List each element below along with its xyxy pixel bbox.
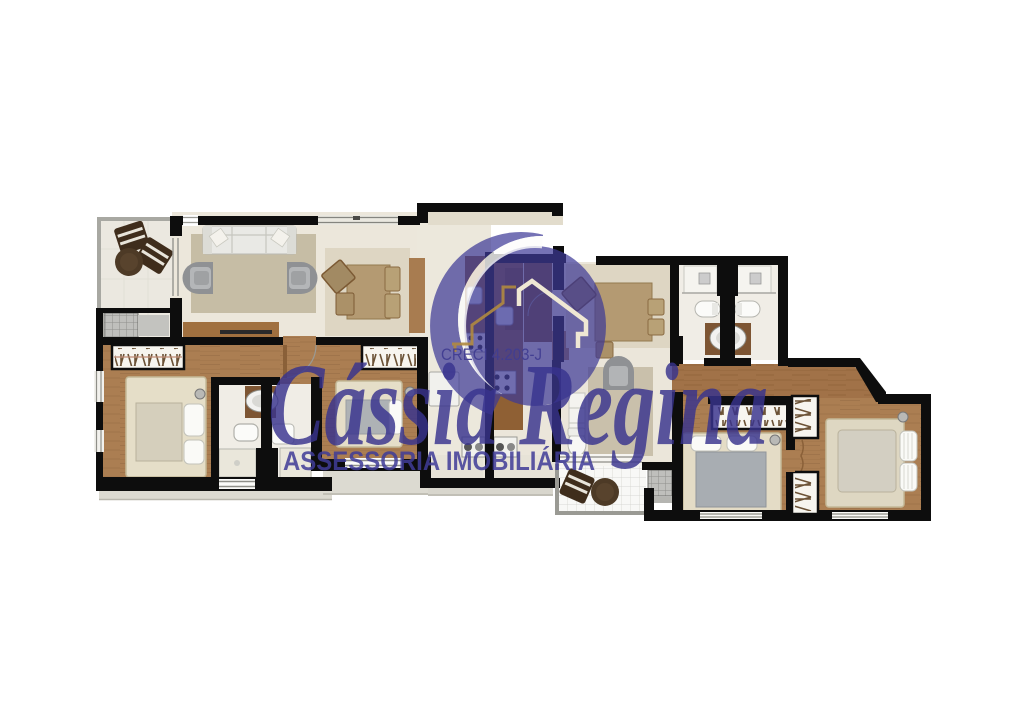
svg-text:ASSESSORIA IMOBILIÁRIA: ASSESSORIA IMOBILIÁRIA xyxy=(283,445,595,476)
